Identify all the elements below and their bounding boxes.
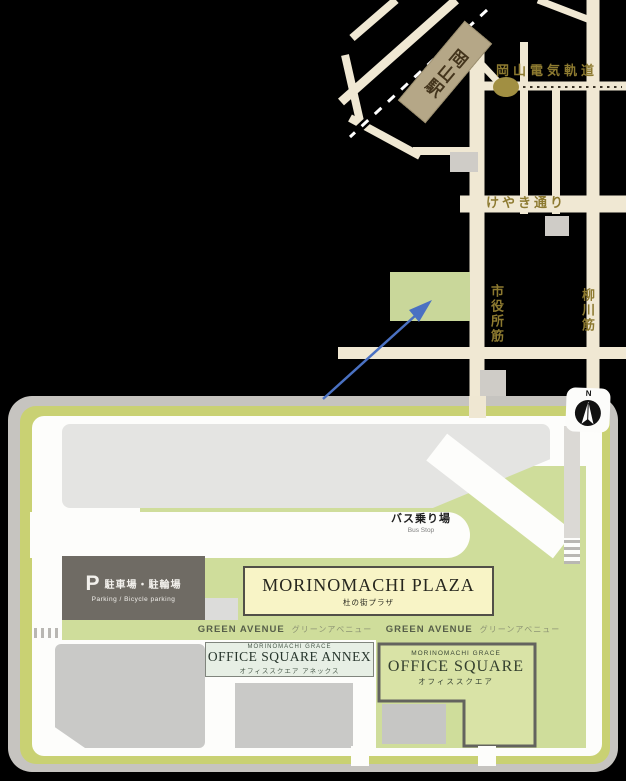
office-square-label: MORINOMACHI GRACE OFFICE SQUARE オフィススクエア xyxy=(380,650,532,687)
yanagawa-street-label: 柳川筋 xyxy=(578,288,597,333)
site-map: P 駐車場・駐輪場 Parking / Bicycle parking MORI… xyxy=(8,396,618,772)
green-avenue-jp: グリーンアベニュー xyxy=(480,624,560,635)
compass-icon: N xyxy=(565,387,611,433)
green-avenue-en: GREEN AVENUE xyxy=(386,624,473,635)
building-block xyxy=(545,216,569,236)
plaza-title: MORINOMACHI PLAZA xyxy=(262,575,475,596)
building-in-notch xyxy=(382,704,446,744)
road-exit-bottom-left xyxy=(351,746,369,766)
parking-icon: P xyxy=(85,573,99,594)
compass-n-label: N xyxy=(586,390,592,398)
right-inner-road xyxy=(564,426,580,538)
parking-title-row: P 駐車場・駐輪場 xyxy=(85,573,181,594)
green-avenue-label-left: GREEN AVENUE グリーンアベニュー xyxy=(190,620,380,638)
annex-subtitle-jp: オフィススクエア アネックス xyxy=(240,665,340,675)
bus-stop-jp: バス乗り場 xyxy=(373,510,469,526)
green-avenue-label-right: GREEN AVENUE グリーンアベニュー xyxy=(378,620,568,638)
parking-label-en: Parking / Bicycle parking xyxy=(92,596,176,603)
tram-stop-dot xyxy=(493,77,519,97)
crosswalk-left xyxy=(34,628,62,638)
lower-left-building-block xyxy=(55,644,205,748)
map-canvas: 岡山駅 岡山電気軌道 けやき通り 市役所筋 柳川筋 P 駐車場・駐輪場 Park… xyxy=(0,0,626,781)
bus-stop-label: バス乗り場 Bus Stop xyxy=(373,510,469,534)
compass-rose-icon xyxy=(572,397,603,428)
annex-title: OFFICE SQUARE ANNEX xyxy=(208,650,371,664)
parking-label-jp: 駐車場・駐輪場 xyxy=(105,576,182,591)
tram-line-label: 岡山電気軌道 xyxy=(496,60,620,79)
site-location-block xyxy=(390,272,470,321)
small-building-block xyxy=(205,598,238,620)
green-avenue-en: GREEN AVENUE xyxy=(198,624,285,635)
building-block xyxy=(480,370,506,398)
bus-stop-en: Bus Stop xyxy=(373,527,469,534)
green-avenue-jp: グリーンアベニュー xyxy=(292,624,372,635)
plaza-subtitle-jp: 杜の街プラザ xyxy=(343,597,394,608)
road-crossing-top xyxy=(469,396,486,418)
office-square-annex-block: MORINOMACHI GRACE OFFICE SQUARE ANNEX オフ… xyxy=(205,642,374,677)
shiyakusho-street-label: 市役所筋 xyxy=(487,284,506,344)
road-exit-bottom-right xyxy=(478,746,496,766)
office-square-title: OFFICE SQUARE xyxy=(380,657,532,676)
morinomachi-plaza-block: MORINOMACHI PLAZA 杜の街プラザ xyxy=(243,566,494,616)
parking-block: P 駐車場・駐輪場 Parking / Bicycle parking xyxy=(62,556,205,620)
office-square-brand: MORINOMACHI GRACE xyxy=(380,650,532,657)
office-square-subtitle-jp: オフィススクエア xyxy=(380,676,532,687)
street-diagonal xyxy=(538,0,590,20)
building-block xyxy=(450,152,478,172)
crosswalk-right xyxy=(564,538,580,564)
keyaki-street-label: けやき通り xyxy=(486,192,566,211)
building-below-annex xyxy=(235,683,353,748)
street-diagonal xyxy=(352,0,396,38)
